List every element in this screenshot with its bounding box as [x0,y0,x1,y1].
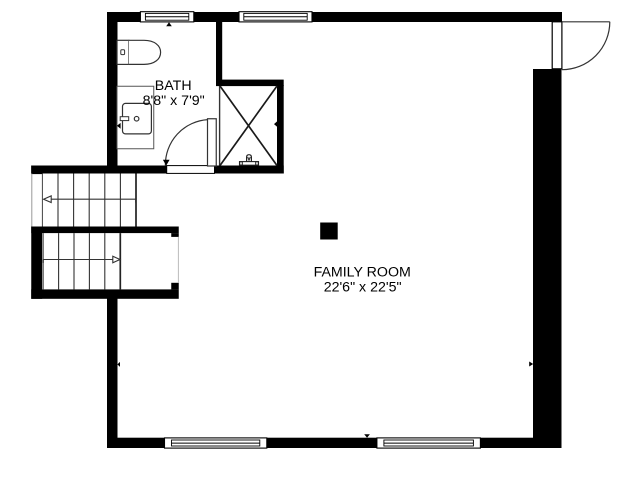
svg-text:8'8" x 7'9": 8'8" x 7'9" [143,93,205,109]
svg-text:FAMILY ROOM: FAMILY ROOM [314,264,411,280]
svg-text:22'6" x 22'5": 22'6" x 22'5" [324,279,402,295]
svg-text:BATH: BATH [155,78,192,94]
